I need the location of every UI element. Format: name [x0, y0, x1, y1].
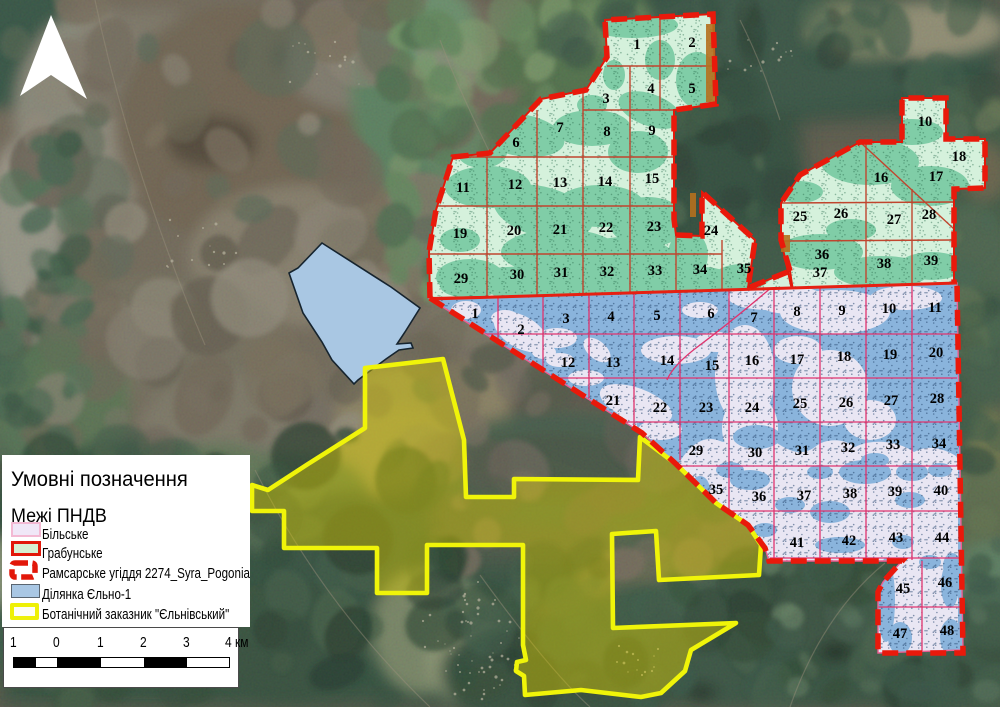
svg-text:25: 25	[793, 396, 808, 412]
svg-text:35: 35	[709, 482, 724, 498]
svg-text:17: 17	[790, 352, 805, 368]
svg-text:33: 33	[648, 263, 663, 279]
svg-text:48: 48	[940, 623, 955, 639]
svg-text:42: 42	[842, 533, 857, 549]
svg-text:15: 15	[705, 358, 720, 374]
svg-text:34: 34	[932, 436, 947, 452]
svg-text:19: 19	[883, 347, 898, 363]
svg-text:17: 17	[929, 169, 944, 185]
svg-text:11: 11	[928, 300, 942, 316]
svg-text:38: 38	[843, 486, 858, 502]
svg-text:29: 29	[454, 271, 469, 287]
svg-text:13: 13	[553, 175, 568, 191]
svg-text:22: 22	[599, 220, 614, 236]
svg-text:2: 2	[688, 35, 695, 51]
svg-text:26: 26	[839, 395, 854, 411]
svg-text:35: 35	[737, 261, 752, 277]
svg-text:32: 32	[841, 440, 856, 456]
svg-text:22: 22	[653, 400, 668, 416]
svg-text:13: 13	[606, 355, 621, 371]
svg-text:21: 21	[553, 222, 568, 238]
svg-text:18: 18	[837, 349, 852, 365]
svg-text:5: 5	[688, 81, 695, 97]
svg-text:28: 28	[930, 391, 945, 407]
svg-text:31: 31	[795, 443, 810, 459]
svg-text:10: 10	[918, 114, 933, 130]
svg-text:30: 30	[510, 267, 525, 283]
svg-text:6: 6	[707, 306, 714, 322]
svg-text:7: 7	[750, 310, 757, 326]
svg-text:33: 33	[886, 437, 901, 453]
svg-text:4: 4	[607, 309, 614, 325]
svg-text:39: 39	[924, 253, 939, 269]
svg-text:3: 3	[602, 91, 609, 107]
svg-text:9: 9	[838, 303, 845, 319]
svg-text:24: 24	[745, 400, 760, 416]
svg-text:1: 1	[633, 37, 640, 53]
svg-text:23: 23	[647, 219, 662, 235]
svg-text:5: 5	[653, 308, 660, 324]
svg-text:3: 3	[562, 311, 569, 327]
svg-text:12: 12	[508, 177, 523, 193]
svg-text:20: 20	[507, 223, 522, 239]
svg-text:14: 14	[598, 174, 613, 190]
svg-text:2: 2	[517, 322, 524, 338]
svg-text:23: 23	[699, 400, 714, 416]
svg-text:24: 24	[704, 223, 719, 239]
svg-text:38: 38	[877, 256, 892, 272]
svg-text:8: 8	[793, 304, 800, 320]
svg-text:9: 9	[648, 123, 655, 139]
svg-text:26: 26	[834, 206, 849, 222]
svg-text:14: 14	[660, 353, 675, 369]
svg-text:15: 15	[645, 171, 660, 187]
svg-text:36: 36	[815, 247, 830, 263]
svg-text:7: 7	[556, 120, 563, 136]
svg-text:10: 10	[882, 301, 897, 317]
svg-text:18: 18	[952, 149, 967, 165]
svg-text:12: 12	[561, 355, 576, 371]
svg-text:16: 16	[745, 353, 760, 369]
svg-text:4: 4	[647, 81, 654, 97]
svg-text:21: 21	[606, 393, 621, 409]
svg-text:45: 45	[896, 581, 911, 597]
svg-text:27: 27	[887, 212, 902, 228]
svg-text:36: 36	[752, 489, 767, 505]
svg-text:19: 19	[453, 226, 468, 242]
svg-text:25: 25	[793, 209, 808, 225]
svg-text:37: 37	[797, 488, 812, 504]
svg-text:34: 34	[693, 262, 708, 278]
svg-text:43: 43	[889, 530, 904, 546]
svg-text:20: 20	[929, 345, 944, 361]
svg-text:11: 11	[456, 180, 470, 196]
svg-text:30: 30	[748, 445, 763, 461]
svg-text:39: 39	[888, 484, 903, 500]
svg-text:47: 47	[893, 626, 908, 642]
svg-text:27: 27	[884, 393, 899, 409]
svg-text:16: 16	[874, 170, 889, 186]
svg-text:31: 31	[554, 265, 569, 281]
svg-text:1: 1	[471, 306, 478, 322]
svg-text:41: 41	[790, 535, 805, 551]
svg-text:46: 46	[938, 575, 953, 591]
svg-text:6: 6	[512, 135, 519, 151]
svg-text:8: 8	[603, 124, 610, 140]
svg-text:29: 29	[689, 443, 704, 459]
svg-text:44: 44	[935, 530, 950, 546]
svg-text:40: 40	[934, 483, 949, 499]
svg-text:28: 28	[922, 207, 937, 223]
svg-text:32: 32	[600, 264, 615, 280]
svg-text:37: 37	[813, 265, 828, 281]
